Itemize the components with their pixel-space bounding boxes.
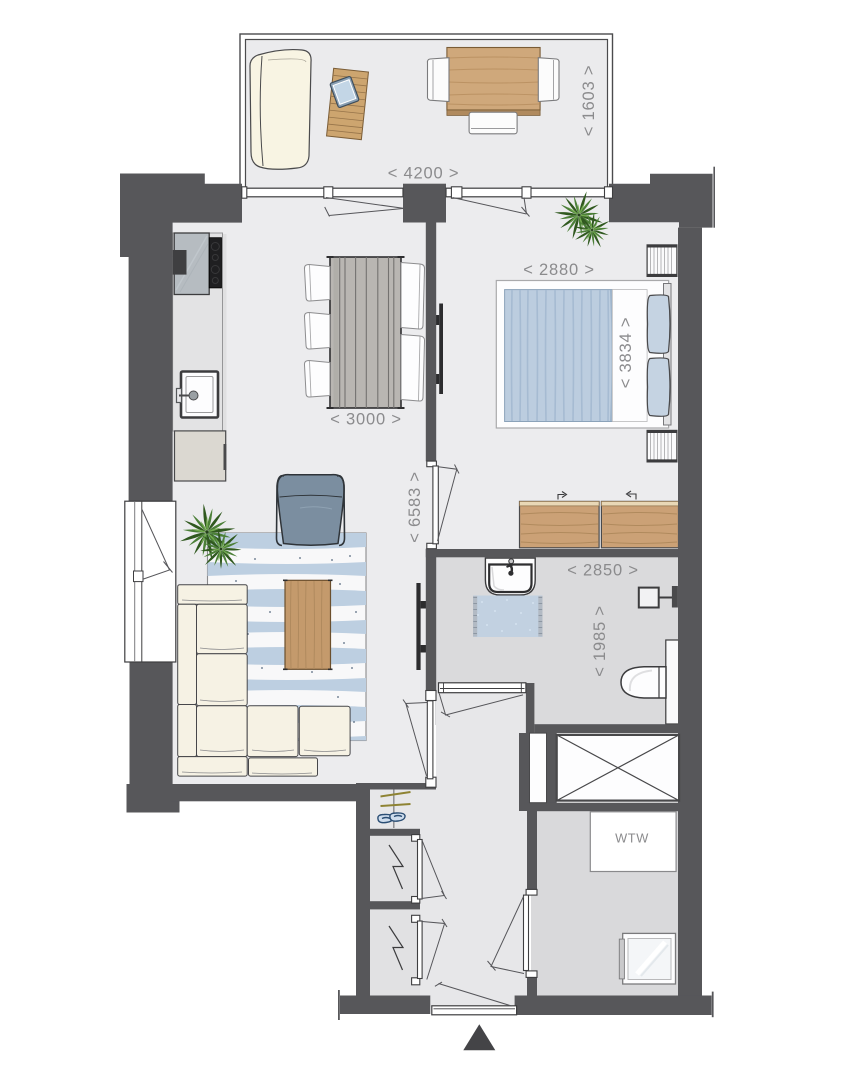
svg-text:< 1985 >: < 1985 > (591, 605, 609, 677)
svg-text:< 2880 >: < 2880 > (523, 261, 595, 279)
svg-text:< 1603 >: < 1603 > (580, 65, 598, 137)
svg-text:< 4200 >: < 4200 > (388, 165, 460, 183)
svg-text:< 3834 >: < 3834 > (617, 317, 635, 389)
svg-text:< 6583 >: < 6583 > (406, 471, 424, 543)
svg-text:< 2850 >: < 2850 > (567, 562, 639, 580)
svg-text:WTW: WTW (615, 831, 649, 846)
svg-text:< 3000 >: < 3000 > (330, 411, 402, 429)
